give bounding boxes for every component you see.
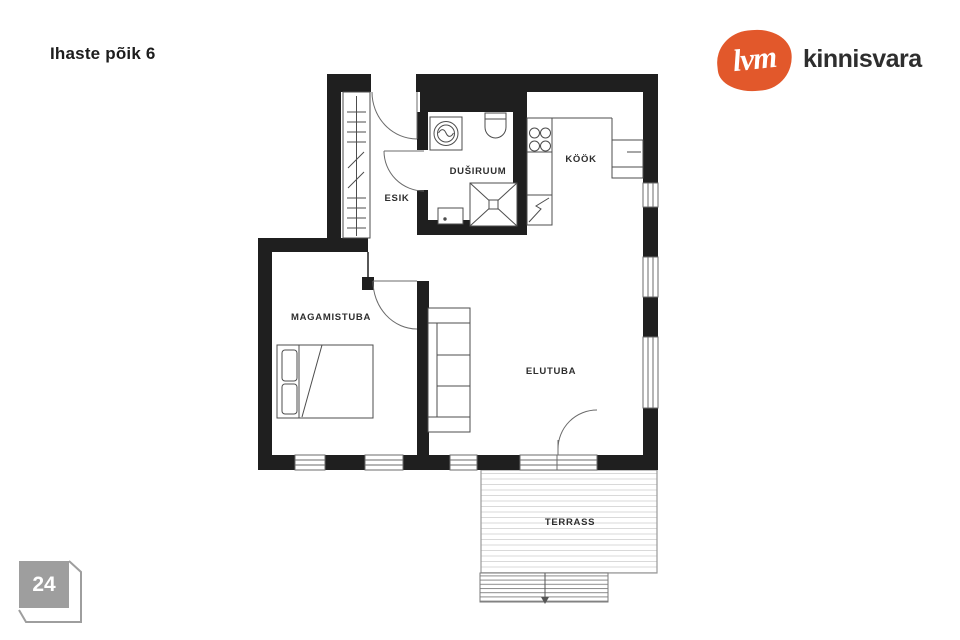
room-label-elutuba: ELUTUBA [526,366,576,377]
room-label-kook: KÖÖK [565,154,596,165]
washing-machine [430,117,462,150]
floor-plan: ESIK DUŠIRUUM KÖÖK MAGAMISTUBA ELUTUBA T… [0,0,960,640]
fridge [612,140,643,178]
page-number-badge: 24 [16,558,86,628]
entrance-door [372,92,417,139]
terrace-door [558,410,597,455]
terrace-steps [480,573,608,604]
washbasin [485,113,506,138]
room-label-dusiruum: DUŠIRUUM [450,165,507,177]
bed [277,345,373,418]
sofa [428,308,470,432]
floor-drain [438,208,463,224]
room-label-terrass: TERRASS [545,517,595,528]
wardrobe [343,92,370,238]
page-number: 24 [19,561,69,608]
doors [372,92,597,455]
bedroom-door [373,281,417,329]
shower [470,183,517,226]
room-label-magamistuba: MAGAMISTUBA [291,312,371,323]
room-label-esik: ESIK [385,193,410,204]
shower-room-door [384,151,424,191]
